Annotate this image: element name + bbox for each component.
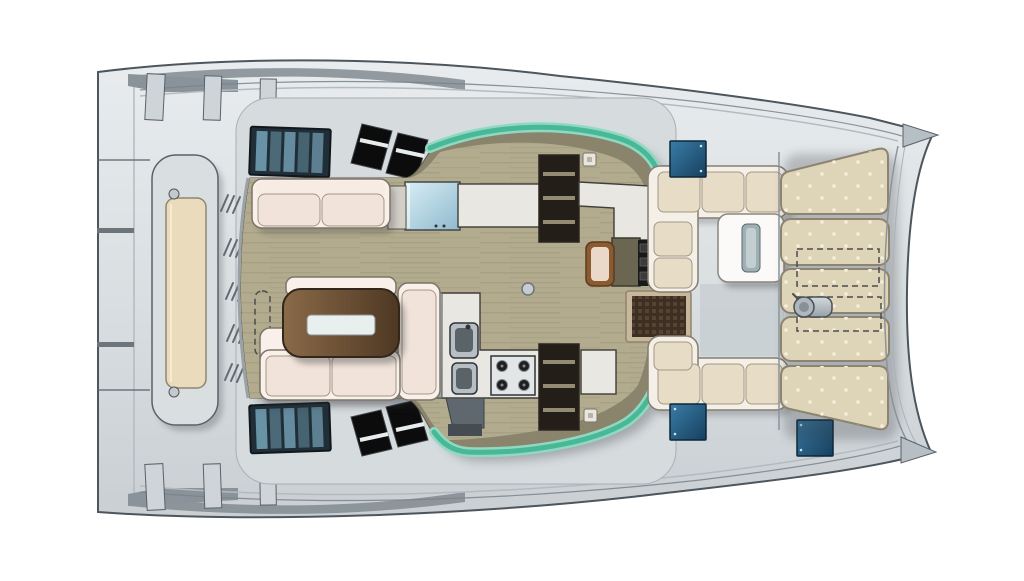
support-post <box>522 283 534 295</box>
deck-light-top <box>583 153 596 166</box>
aft-bench-knob <box>169 387 179 397</box>
cockpit-deck-patch <box>700 284 784 356</box>
stairway-top <box>539 155 579 242</box>
glasstop-hinge <box>435 225 438 228</box>
galley-top <box>388 182 543 230</box>
sofa-u-right-cushion <box>402 290 436 394</box>
counter-top <box>458 184 543 227</box>
saloon-table <box>283 289 405 364</box>
table-inset-tray <box>307 315 375 335</box>
doormat-grid <box>632 296 686 337</box>
nav-station <box>586 238 650 286</box>
table-leaf-slot-inner <box>746 228 756 268</box>
instrument <box>640 258 648 266</box>
glasstop-hinge <box>443 225 446 228</box>
stairway-bottom <box>539 344 579 430</box>
yacht-floorplan-canvas <box>0 0 1024 581</box>
counter-bottom-right <box>581 350 616 394</box>
hull-window-top <box>249 127 331 178</box>
instrument <box>640 272 648 280</box>
sofa-top-seat <box>322 194 384 226</box>
hull-window-bottom <box>249 403 331 454</box>
galley-sink <box>450 323 478 394</box>
step-wedge <box>446 398 484 428</box>
deck-light-bottom <box>584 409 597 422</box>
stern-groove <box>97 342 134 347</box>
stern-groove <box>97 228 134 233</box>
glasstop-highlight <box>407 184 410 228</box>
aft-bench-knob <box>169 189 179 199</box>
entry-doormat <box>626 291 691 342</box>
nav-desk <box>612 238 640 286</box>
instrument <box>640 244 648 252</box>
deck-plan-drawing <box>0 0 1024 581</box>
sofa-top <box>252 179 395 234</box>
glasstop-unit <box>405 182 460 230</box>
sunpad-button-dots <box>775 140 895 440</box>
step-strip <box>448 424 482 436</box>
sofa-top-seat <box>258 194 320 226</box>
nav-chair-cushion <box>591 247 609 281</box>
galley-stove <box>491 356 535 395</box>
